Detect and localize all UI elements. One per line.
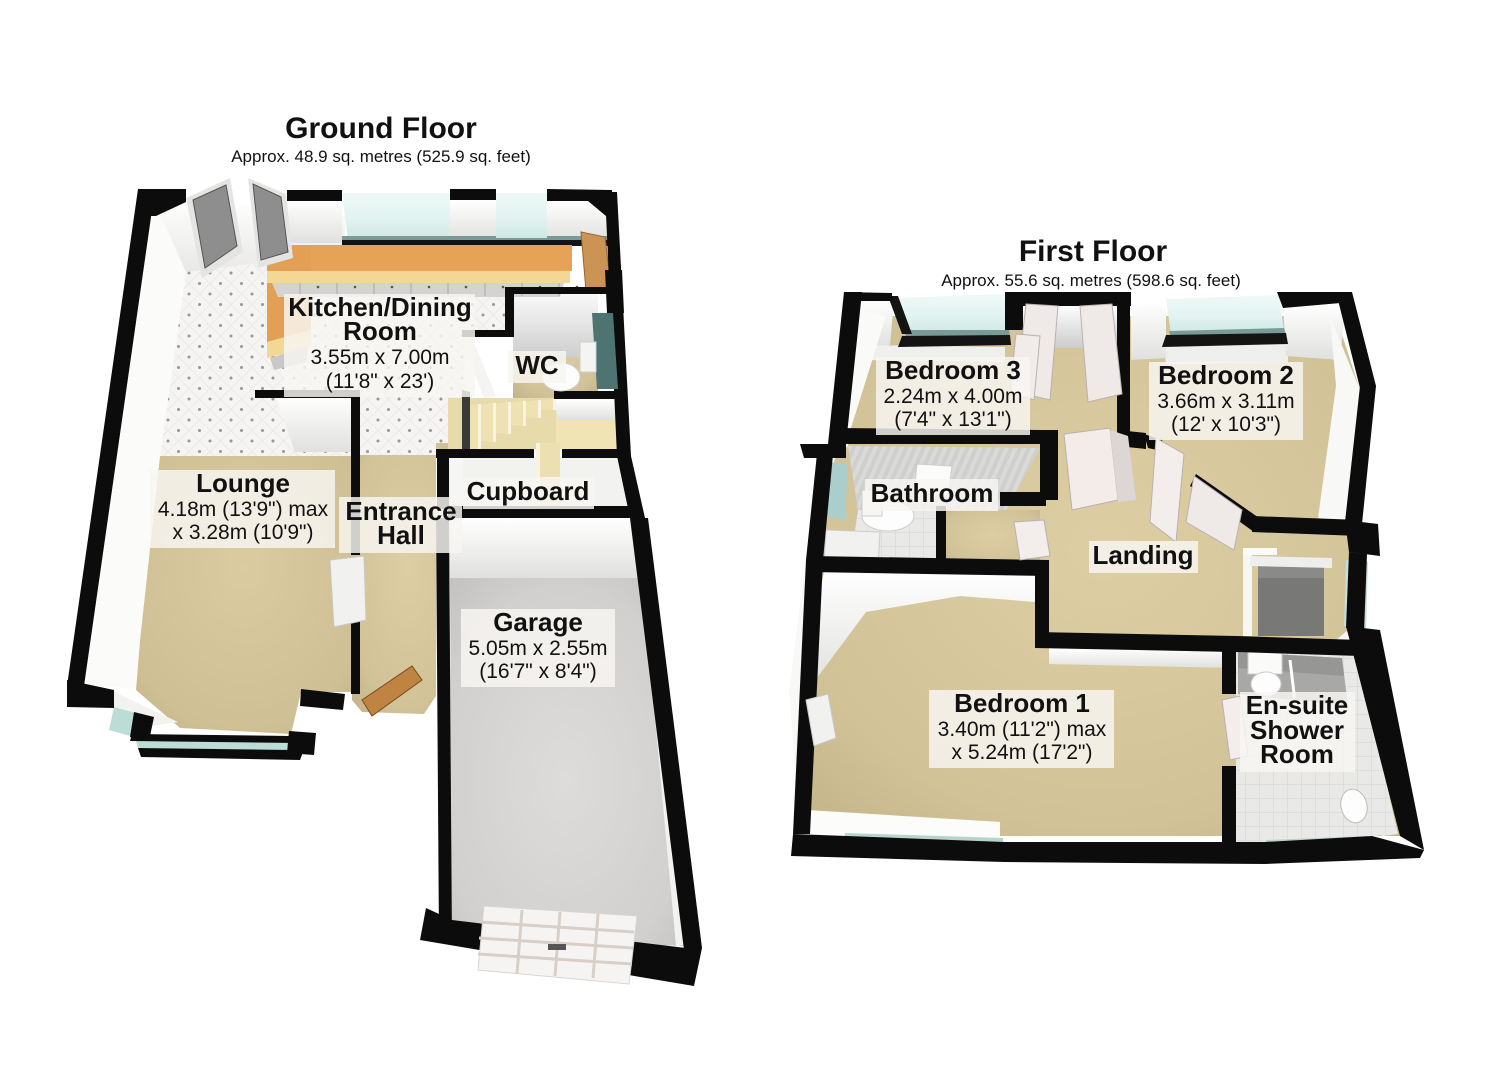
svg-text:Bathroom: Bathroom <box>871 478 994 508</box>
svg-text:(11'8" x 23'): (11'8" x 23') <box>326 370 434 393</box>
svg-text:Approx. 55.6 sq. metres (598.6: Approx. 55.6 sq. metres (598.6 sq. feet) <box>941 271 1241 290</box>
svg-text:x 3.28m (10'9"): x 3.28m (10'9") <box>172 521 313 544</box>
svg-text:Ground Floor: Ground Floor <box>285 112 477 145</box>
svg-text:(16'7" x 8'4"): (16'7" x 8'4") <box>479 660 596 683</box>
svg-text:Approx. 48.9 sq. metres (525.9: Approx. 48.9 sq. metres (525.9 sq. feet) <box>231 147 531 166</box>
svg-text:Room: Room <box>343 316 417 346</box>
svg-text:2.24m x 4.00m: 2.24m x 4.00m <box>884 385 1023 408</box>
svg-text:(7'4" x 13'1"): (7'4" x 13'1") <box>894 408 1011 431</box>
svg-text:x 5.24m (17'2"): x 5.24m (17'2") <box>951 741 1092 764</box>
svg-text:Hall: Hall <box>377 520 425 550</box>
svg-text:Landing: Landing <box>1092 540 1193 570</box>
svg-text:Bedroom 3: Bedroom 3 <box>885 355 1021 385</box>
svg-text:3.66m x 3.11m: 3.66m x 3.11m <box>1157 390 1294 413</box>
svg-text:WC: WC <box>515 350 559 380</box>
svg-text:Lounge: Lounge <box>196 468 290 498</box>
svg-text:Bedroom 1: Bedroom 1 <box>954 688 1090 718</box>
svg-text:Room: Room <box>1260 739 1334 769</box>
svg-text:First Floor: First Floor <box>1019 235 1168 268</box>
svg-text:5.05m x 2.55m: 5.05m x 2.55m <box>469 637 608 660</box>
svg-text:Bedroom 2: Bedroom 2 <box>1158 360 1294 390</box>
svg-text:4.18m (13'9") max: 4.18m (13'9") max <box>158 498 329 521</box>
svg-text:Garage: Garage <box>493 607 583 637</box>
svg-text:3.55m x 7.00m: 3.55m x 7.00m <box>311 346 450 369</box>
svg-text:3.40m (11'2") max: 3.40m (11'2") max <box>938 718 1107 741</box>
svg-text:Cupboard: Cupboard <box>467 476 590 506</box>
svg-text:(12' x 10'3"): (12' x 10'3") <box>1171 413 1281 436</box>
